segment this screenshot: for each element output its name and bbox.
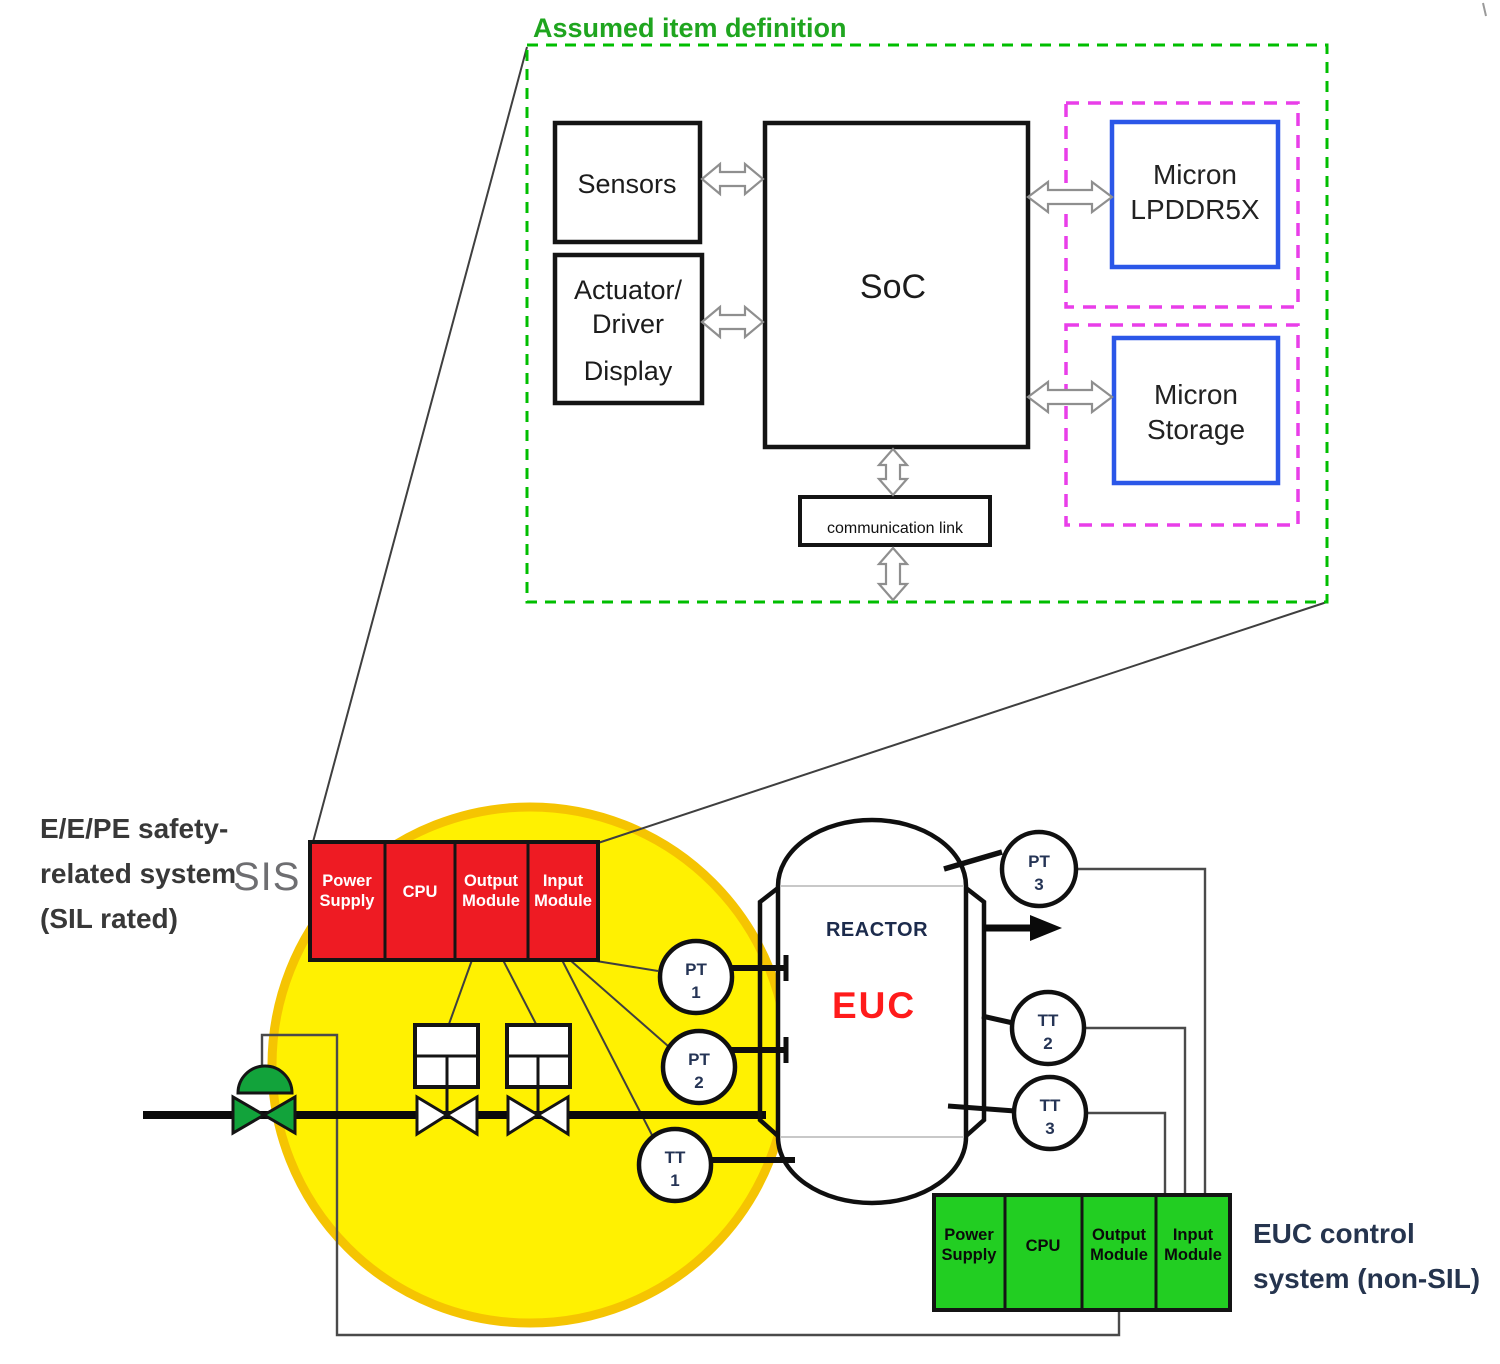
sil-system-label-line3: (SIL rated) bbox=[40, 903, 178, 934]
soc-commlink-arrow-icon bbox=[879, 449, 907, 495]
communication-link-label: communication link bbox=[827, 520, 964, 537]
sis-output-module-label: Output bbox=[464, 872, 519, 890]
lpddr5x-label-line2: LPDDR5X bbox=[1130, 194, 1259, 225]
instrument-tt3: TT 3 bbox=[1014, 1077, 1086, 1149]
sil-system-label-line1: E/E/PE safety- bbox=[40, 813, 228, 844]
assumed-item-definition: Assumed item definition Sensors Actuator… bbox=[527, 13, 1327, 602]
euc-output-module-label: Output bbox=[1092, 1226, 1147, 1244]
pt2-label: PT bbox=[688, 1050, 710, 1069]
actuator-label-line2: Driver bbox=[592, 309, 664, 339]
sis-cpu-label: CPU bbox=[403, 883, 438, 901]
wire-tt2-to-input bbox=[1085, 1028, 1185, 1195]
tt2-stub bbox=[982, 1016, 1013, 1023]
euc-power-supply-label: Power bbox=[944, 1226, 994, 1244]
callout-line-left bbox=[313, 47, 527, 842]
euc-input-module-label2: Module bbox=[1164, 1246, 1222, 1264]
euc-control-label-line1: EUC control bbox=[1253, 1218, 1415, 1249]
pt1-number: 1 bbox=[691, 983, 700, 1002]
control-valve-body-left bbox=[233, 1097, 264, 1133]
callout-line-right bbox=[598, 602, 1327, 843]
tt1-number: 1 bbox=[670, 1171, 679, 1190]
euc-control-rack: Power Supply CPU Output Module Input Mod… bbox=[934, 1195, 1230, 1310]
storage-label-line1: Micron bbox=[1154, 379, 1238, 410]
soc-storage-arrow-icon bbox=[1028, 382, 1112, 412]
lpddr5x-label-line1: Micron bbox=[1153, 159, 1237, 190]
tt3-number: 3 bbox=[1045, 1119, 1054, 1138]
pt3-number: 3 bbox=[1034, 875, 1043, 894]
actuator-label-line1: Actuator/ bbox=[574, 275, 683, 305]
soc-label: SoC bbox=[860, 268, 926, 306]
pt2-number: 2 bbox=[694, 1073, 703, 1092]
sis-logic-solver-rack: Power Supply CPU Output Module Input Mod… bbox=[310, 842, 598, 960]
instrument-pt2: PT 2 bbox=[663, 1031, 735, 1103]
pt1-label: PT bbox=[685, 960, 707, 979]
actuator-soc-arrow-icon bbox=[702, 307, 763, 337]
sis-label: SIS bbox=[233, 855, 300, 899]
tt1-label: TT bbox=[665, 1148, 686, 1167]
sensors-soc-arrow-icon bbox=[702, 164, 763, 194]
tt2-number: 2 bbox=[1043, 1034, 1052, 1053]
euc-control-label-line2: system (non-SIL) bbox=[1253, 1263, 1480, 1294]
euc-output-module-label2: Module bbox=[1090, 1246, 1148, 1264]
diagram-stage: PT 1 PT 2 TT 1 PT 3 TT 2 TT 3 REACT bbox=[0, 0, 1500, 1364]
outlet-arrow-icon bbox=[1030, 915, 1062, 941]
reactor-label: REACTOR bbox=[826, 919, 928, 941]
safety-diagram-svg: PT 1 PT 2 TT 1 PT 3 TT 2 TT 3 REACT bbox=[0, 0, 1500, 1364]
vessel-jacket-right bbox=[966, 888, 984, 1136]
pt3-label: PT bbox=[1028, 852, 1050, 871]
euc-input-module-label: Input bbox=[1173, 1226, 1214, 1244]
sis-output-module-label2: Module bbox=[462, 892, 520, 910]
sensors-label: Sensors bbox=[577, 169, 676, 199]
euc-cpu-label: CPU bbox=[1026, 1237, 1061, 1255]
tt3-label: TT bbox=[1040, 1096, 1061, 1115]
instrument-pt1: PT 1 bbox=[660, 941, 732, 1013]
sis-input-module-label: Input bbox=[543, 872, 584, 890]
euc-power-supply-label2: Supply bbox=[941, 1246, 997, 1264]
assumed-item-title: Assumed item definition bbox=[533, 13, 847, 43]
sis-power-supply-label: Power bbox=[322, 872, 372, 890]
instrument-tt2: TT 2 bbox=[1012, 992, 1084, 1064]
corner-artifact bbox=[1483, 3, 1486, 16]
actuator-label-line3: Display bbox=[584, 356, 673, 386]
sil-system-label-line2: related system bbox=[40, 858, 236, 889]
euc-label: EUC bbox=[832, 985, 916, 1026]
micron-storage-box bbox=[1114, 338, 1278, 483]
instrument-pt3: PT 3 bbox=[1002, 832, 1076, 906]
sis-power-supply-label2: Supply bbox=[319, 892, 375, 910]
storage-label-line2: Storage bbox=[1147, 414, 1245, 445]
wire-tt3-to-input bbox=[1087, 1113, 1165, 1195]
soc-lpddr5x-arrow-icon bbox=[1028, 182, 1112, 212]
commlink-external-arrow-icon bbox=[879, 548, 907, 600]
tt2-label: TT bbox=[1038, 1011, 1059, 1030]
instrument-tt1: TT 1 bbox=[639, 1129, 711, 1201]
sis-input-module-label2: Module bbox=[534, 892, 592, 910]
